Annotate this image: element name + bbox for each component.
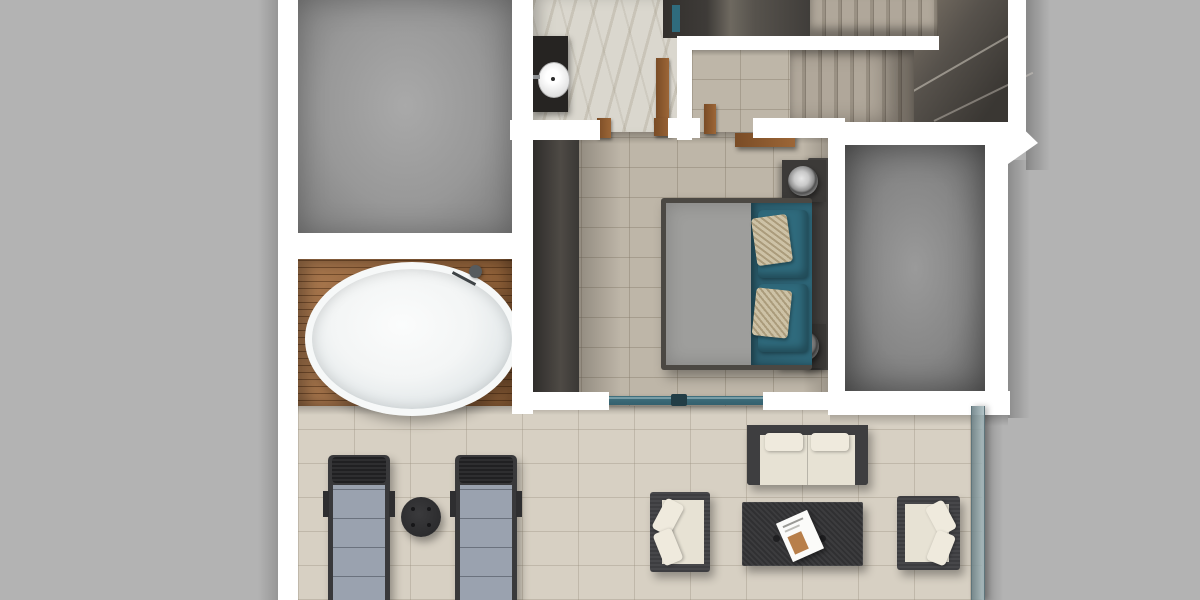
sun-lounger-right <box>455 455 517 600</box>
sofa-arm-right <box>855 425 868 485</box>
round-side-table <box>401 497 441 537</box>
wardrobe-nook <box>663 0 810 38</box>
table-dot <box>427 507 431 511</box>
room-right-floor <box>845 145 985 392</box>
table-dot <box>411 523 415 527</box>
built-in-wardrobe-band <box>533 134 579 396</box>
coffee-table <box>742 502 863 566</box>
bedroom-door-edge <box>704 104 716 134</box>
lounger-arm-left <box>323 491 329 517</box>
wall-stair-rail <box>677 36 939 50</box>
lounger-arm-left <box>450 491 456 517</box>
sofa-back-cushion-left <box>765 433 803 451</box>
sink-faucet <box>532 75 540 79</box>
sun-lounger-left <box>328 455 390 600</box>
lounger-headrest <box>332 457 386 483</box>
wall-room-top-left-bottom <box>278 233 533 259</box>
table-lamp-north <box>788 166 818 196</box>
stair-lower-flight <box>790 48 914 124</box>
terrace-glass-railing <box>971 406 985 600</box>
outdoor-armchair-left <box>650 492 710 572</box>
sofa-arm-left <box>747 425 760 485</box>
wall-sliding-door-left <box>533 392 609 410</box>
stair-upper-flight <box>810 0 938 36</box>
lounger-arm-right <box>516 491 522 517</box>
building-shadow-right-mid <box>1008 160 1030 418</box>
terrace-floor <box>298 406 982 600</box>
accent-pillow-south <box>752 287 793 339</box>
building-shadow-left <box>258 0 278 600</box>
accent-pillow-north <box>751 214 793 267</box>
sofa-seat-divider <box>807 435 808 485</box>
outdoor-sofa <box>747 425 868 485</box>
towel-teal-accent <box>672 5 680 32</box>
bedroom-shadow-left <box>579 132 621 408</box>
lounger-headrest <box>459 457 513 483</box>
floor-plan-render <box>0 0 1200 600</box>
building-shadow-right-bottom <box>983 414 1003 600</box>
lounger-arm-right <box>389 491 395 517</box>
sink-drain <box>551 77 555 81</box>
table-knob <box>773 535 780 542</box>
bathtub <box>305 262 519 416</box>
lounger-cushion <box>460 485 512 600</box>
outdoor-armchair-right <box>897 496 960 570</box>
magazine-photo <box>787 531 808 554</box>
magazine <box>776 510 824 562</box>
table-dot <box>427 523 431 527</box>
sliding-door-handle <box>671 394 687 406</box>
wall-exterior-left <box>278 0 298 600</box>
wall-room-right-top <box>830 122 1010 145</box>
sofa-back-cushion-right <box>811 433 849 451</box>
lounger-cushion <box>333 485 385 600</box>
wall-bathroom-bottom <box>510 120 600 140</box>
room-top-left-floor <box>298 0 512 235</box>
tub-faucet <box>469 265 482 278</box>
wall-bedroom-room-right-divider <box>828 122 845 415</box>
wall-room-right-east <box>985 145 1008 415</box>
wall-inner-vertical <box>512 0 533 414</box>
table-dot <box>411 507 415 511</box>
wall-sliding-door-right <box>763 392 830 410</box>
wall-bedroom-top-stub <box>668 118 700 138</box>
